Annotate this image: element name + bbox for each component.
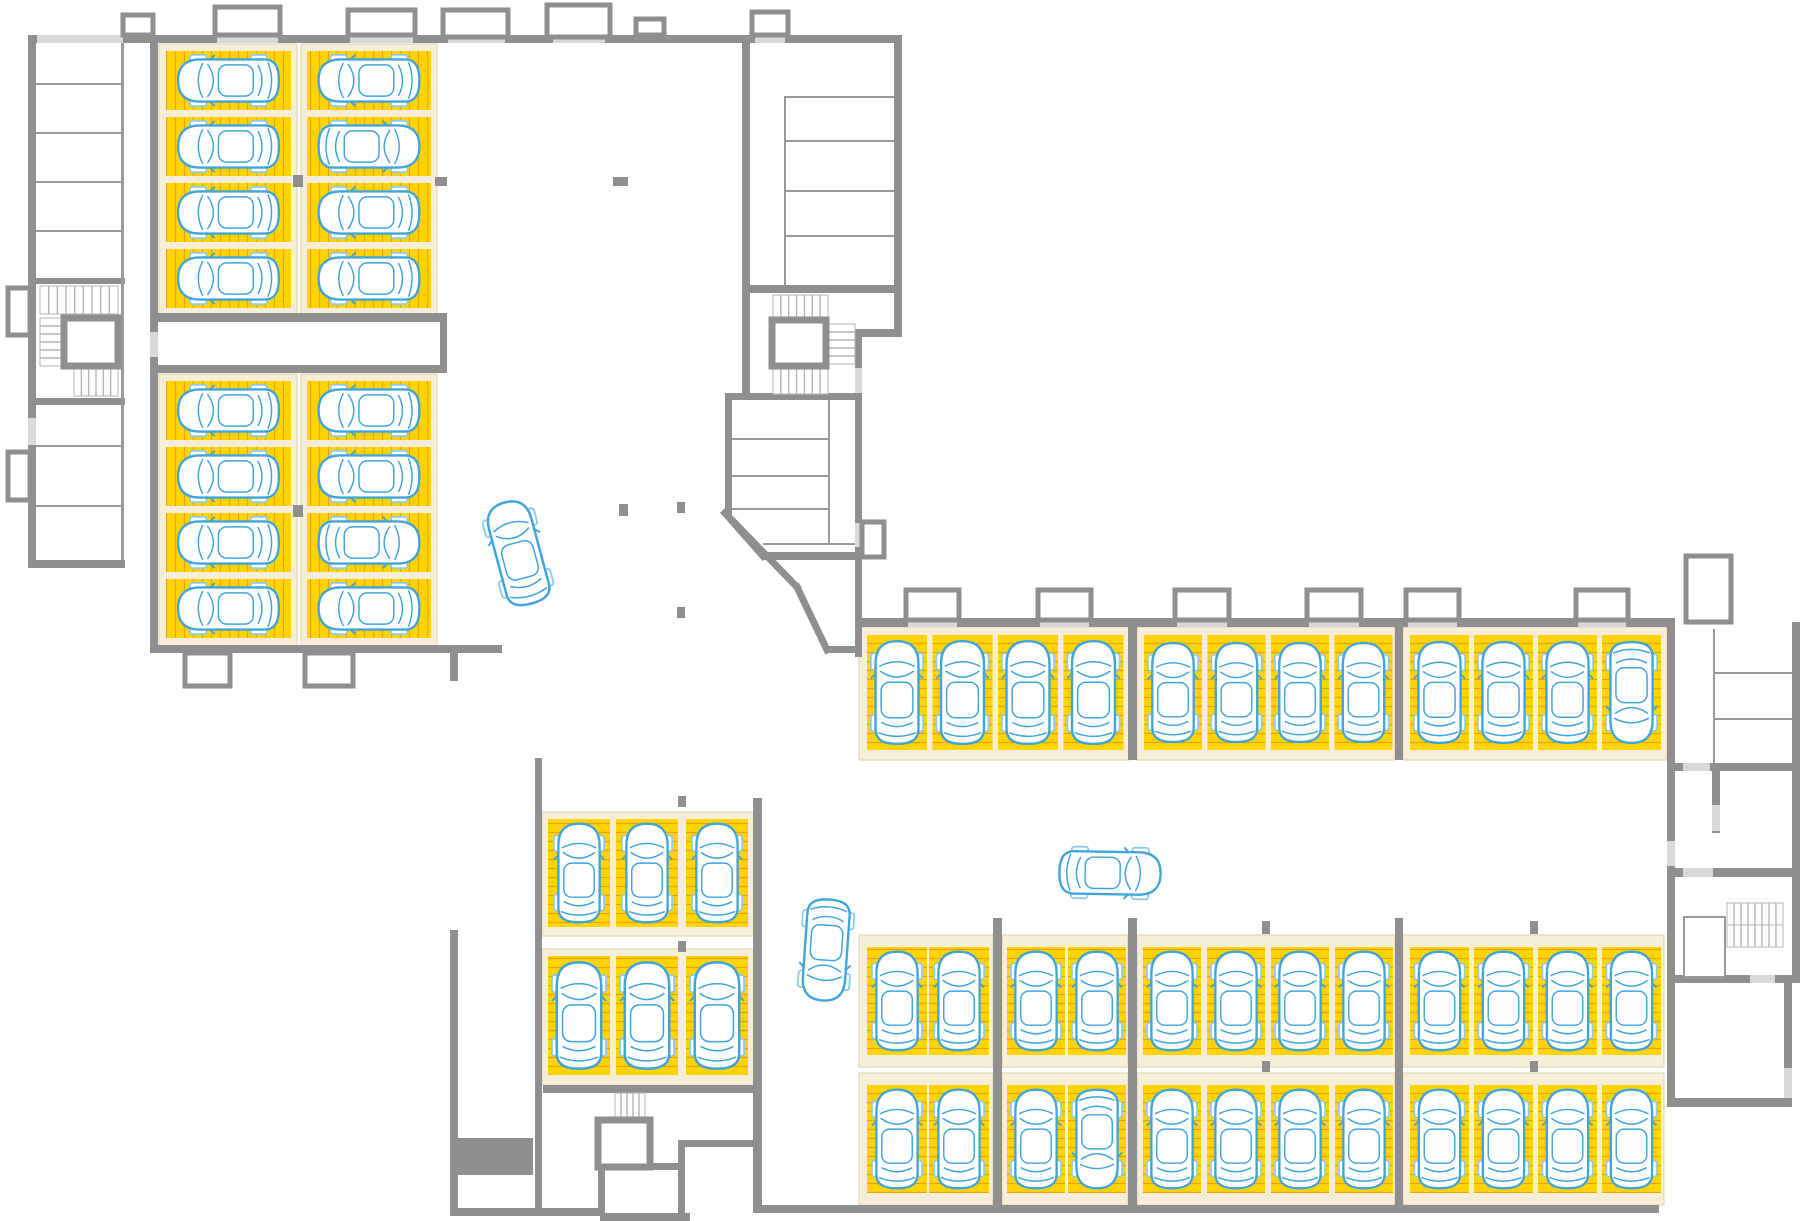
elevator-shaft xyxy=(772,320,826,366)
car xyxy=(1606,1090,1656,1189)
wall xyxy=(685,1140,762,1147)
car xyxy=(622,824,672,923)
car xyxy=(552,962,606,1068)
car xyxy=(319,517,420,568)
wall-niche xyxy=(862,522,884,557)
car xyxy=(1211,1090,1261,1189)
car xyxy=(1478,642,1529,743)
stair-outline xyxy=(615,1093,645,1120)
stair-outline xyxy=(828,324,855,364)
car xyxy=(1542,1090,1592,1189)
partition-line xyxy=(763,543,857,545)
partition-line xyxy=(786,190,894,192)
column-pillar xyxy=(677,607,685,618)
door-opening xyxy=(150,332,158,357)
car xyxy=(1147,952,1197,1051)
north-east-row-group-3 xyxy=(1403,627,1667,760)
wall xyxy=(678,1140,685,1215)
car xyxy=(1011,952,1061,1051)
car xyxy=(319,385,420,436)
staircase xyxy=(74,368,118,396)
south-row-a-group-1 xyxy=(859,935,993,1067)
wall xyxy=(600,1213,690,1221)
car xyxy=(1339,1090,1389,1189)
wall xyxy=(450,653,458,681)
car xyxy=(1072,1090,1122,1189)
car xyxy=(797,898,855,1003)
partition-line xyxy=(1713,629,1715,763)
wall-niche xyxy=(123,15,153,35)
car xyxy=(1002,641,1054,744)
car xyxy=(319,253,420,304)
car xyxy=(1414,642,1465,743)
wall-niche xyxy=(636,19,664,35)
column-pillar xyxy=(1262,1061,1270,1072)
car xyxy=(1275,952,1325,1051)
car xyxy=(872,1090,922,1189)
column-pillar xyxy=(677,502,685,513)
elevator-shaft xyxy=(598,1120,650,1167)
door-opening xyxy=(28,418,36,445)
wall xyxy=(450,1208,543,1216)
car xyxy=(1148,643,1198,742)
wall xyxy=(855,329,902,337)
car xyxy=(1147,1090,1197,1189)
partition-line xyxy=(36,445,121,447)
partition-line xyxy=(786,96,894,98)
car xyxy=(178,517,279,568)
partition-line xyxy=(786,140,894,142)
south-row-b-group-2 xyxy=(1002,1073,1128,1205)
staircase xyxy=(1727,925,1783,947)
car xyxy=(1542,642,1593,743)
car xyxy=(479,496,557,611)
partition-line xyxy=(732,475,828,477)
wall xyxy=(1395,918,1403,1213)
wall xyxy=(598,1167,605,1214)
block-a-col-2 xyxy=(301,44,437,316)
wall xyxy=(28,560,125,568)
diagonal-wall xyxy=(725,513,797,587)
column-pillar xyxy=(613,177,628,186)
car xyxy=(1414,1090,1464,1189)
car xyxy=(1067,641,1119,744)
partition-line xyxy=(36,505,121,507)
car xyxy=(934,1090,984,1189)
partition-line xyxy=(121,43,124,560)
car xyxy=(1275,643,1325,742)
partition-line xyxy=(36,181,121,183)
car xyxy=(1542,952,1592,1051)
wall xyxy=(455,1138,533,1175)
column-pillar xyxy=(435,177,447,186)
partition-line xyxy=(1715,718,1792,720)
partition-line xyxy=(36,132,121,134)
car xyxy=(178,253,279,304)
wall-niche xyxy=(1307,590,1361,620)
block-a-col-1 xyxy=(159,44,297,316)
south-row-b-group-1 xyxy=(859,1073,993,1205)
wall xyxy=(750,285,902,293)
staircase xyxy=(773,295,828,318)
wall-niche xyxy=(215,7,280,35)
door-opening xyxy=(37,35,123,43)
car xyxy=(1478,952,1528,1051)
car xyxy=(1211,643,1261,742)
car xyxy=(319,121,420,172)
column-pillar xyxy=(678,796,686,807)
door-opening xyxy=(1683,763,1710,771)
stair-outline xyxy=(40,286,118,314)
small-room-outline xyxy=(1684,917,1725,977)
wall xyxy=(1128,918,1137,1213)
wall xyxy=(827,646,857,653)
wall xyxy=(742,43,750,395)
partition-line xyxy=(36,83,121,85)
wall-niche xyxy=(8,452,30,500)
south-row-a-group-3 xyxy=(1137,935,1395,1067)
wall-niche xyxy=(906,590,959,620)
wall xyxy=(543,1085,762,1093)
car xyxy=(936,641,988,744)
car xyxy=(319,55,420,106)
column-pillar xyxy=(1530,1061,1538,1072)
wall-niche xyxy=(1406,590,1459,620)
car xyxy=(178,385,279,436)
wall xyxy=(158,313,447,322)
wall xyxy=(28,398,125,405)
car xyxy=(1211,952,1261,1051)
staircase xyxy=(40,318,64,366)
car xyxy=(178,55,279,106)
car xyxy=(1606,642,1657,743)
car xyxy=(872,952,922,1051)
partition-line xyxy=(786,235,894,237)
staircase xyxy=(40,286,118,314)
elevator-shaft xyxy=(64,318,118,366)
partition-line xyxy=(36,230,121,232)
floor-plan-page xyxy=(0,0,1800,1221)
door-opening xyxy=(855,368,862,393)
column-pillar xyxy=(293,175,303,187)
wall xyxy=(1675,1098,1792,1107)
south-row-b-group-3 xyxy=(1137,1073,1395,1205)
south-row-a-group-2 xyxy=(1002,935,1128,1067)
wall xyxy=(763,552,857,560)
north-east-row-group-2 xyxy=(1137,627,1395,760)
car xyxy=(1011,1090,1061,1189)
wall-niche xyxy=(547,5,610,37)
wall xyxy=(855,618,1675,627)
door-opening xyxy=(1784,1068,1792,1098)
diagonal-wall xyxy=(797,587,827,650)
car xyxy=(319,451,420,502)
car xyxy=(1606,952,1656,1051)
wall-niche xyxy=(1576,590,1628,620)
car xyxy=(178,583,279,634)
wall-niche xyxy=(1686,556,1731,622)
wall-niche xyxy=(752,12,788,35)
car xyxy=(178,187,279,238)
floor-plan-svg xyxy=(0,0,1800,1221)
wall xyxy=(725,393,732,515)
door-opening xyxy=(1683,868,1713,877)
column-pillar xyxy=(619,504,628,516)
partition-line xyxy=(732,438,828,440)
north-east-row-group-1 xyxy=(859,627,1130,760)
wall xyxy=(753,1205,1659,1213)
car xyxy=(934,952,984,1051)
partition-line xyxy=(784,96,786,286)
car xyxy=(554,824,604,923)
car xyxy=(1339,952,1389,1051)
column-pillar xyxy=(1530,921,1538,934)
car xyxy=(1059,846,1161,899)
wall xyxy=(535,758,542,1213)
center-block-row-1 xyxy=(542,812,756,936)
car xyxy=(1338,643,1388,742)
car xyxy=(620,962,674,1068)
wall-niche xyxy=(443,10,508,37)
door-opening xyxy=(1667,841,1675,866)
wall xyxy=(753,798,762,1213)
wall xyxy=(993,918,1002,1213)
car xyxy=(319,187,420,238)
wall-niche xyxy=(185,653,230,686)
wall xyxy=(440,313,447,373)
column-pillar xyxy=(1262,921,1270,934)
wall-niche xyxy=(1175,590,1229,620)
wall-niche xyxy=(305,653,353,686)
car xyxy=(1275,1090,1325,1189)
car xyxy=(178,451,279,502)
south-row-a-group-4 xyxy=(1403,935,1664,1067)
partition-line xyxy=(828,400,830,545)
wall xyxy=(158,365,447,373)
staircase xyxy=(1727,903,1783,925)
car xyxy=(692,824,742,923)
car xyxy=(1478,1090,1528,1189)
wall xyxy=(1128,627,1137,760)
partition-line xyxy=(732,508,828,510)
staircase xyxy=(828,324,855,364)
door-opening xyxy=(1712,805,1720,831)
staircase xyxy=(615,1093,645,1120)
column-pillar xyxy=(293,505,303,517)
car xyxy=(178,121,279,172)
wall xyxy=(543,1208,601,1216)
wall-niche xyxy=(8,288,30,335)
wall xyxy=(1395,627,1403,760)
south-row-b-group-4 xyxy=(1403,1073,1664,1205)
wall-niche xyxy=(348,10,415,35)
partition-line xyxy=(1715,672,1792,674)
wall-niche xyxy=(1038,590,1091,620)
wall xyxy=(28,278,125,284)
wall xyxy=(1792,622,1800,983)
staircase xyxy=(773,368,828,394)
car xyxy=(319,583,420,634)
door-opening xyxy=(1750,975,1775,983)
car xyxy=(1414,952,1464,1051)
car xyxy=(1072,952,1122,1051)
column-pillar xyxy=(678,941,686,952)
center-block-row-2 xyxy=(542,949,756,1085)
block-b-col-2 xyxy=(301,374,437,647)
block-b-col-1 xyxy=(159,374,297,647)
car xyxy=(871,641,923,744)
car xyxy=(690,962,744,1068)
